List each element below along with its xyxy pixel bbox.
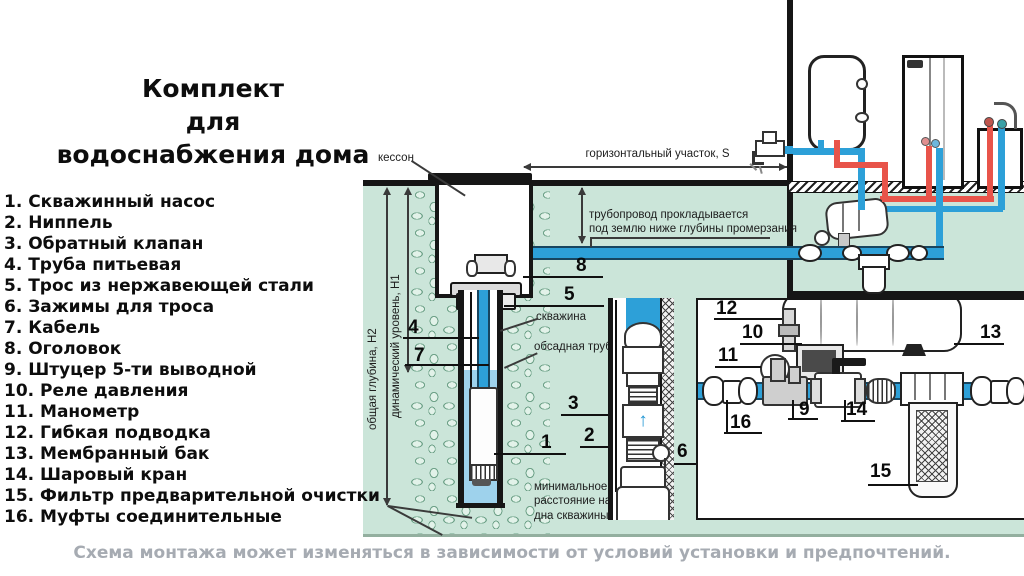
shower-hot-riser xyxy=(926,146,932,202)
well-bottom xyxy=(456,503,505,508)
basement-bottom xyxy=(787,291,1024,298)
footer-note: Схема монтажа может изменяться в зависим… xyxy=(50,543,974,563)
water-supply-diagram: общая глубина, Н2 динамический уровень, … xyxy=(0,0,1024,576)
page-title: Комплект для водоснабжения дома xyxy=(30,72,396,171)
coupling-right-end xyxy=(1006,377,1024,405)
callout-5: 5 xyxy=(564,285,575,304)
heater-cold-stub xyxy=(818,140,824,150)
filter-head-rib xyxy=(944,374,946,400)
leader-line xyxy=(590,237,592,247)
title-line-2: для xyxy=(30,105,396,138)
list-item: 3. Обратный клапан xyxy=(4,234,376,255)
pressure-relay-core xyxy=(802,350,836,372)
pump-cable xyxy=(470,292,472,388)
cold-pipe-house-drop xyxy=(858,148,865,210)
arrowhead xyxy=(404,187,412,195)
shower-cold-riser xyxy=(936,148,943,210)
shower-valve-hot xyxy=(921,137,930,146)
detail-cable xyxy=(615,300,617,492)
callout-line xyxy=(792,400,794,420)
dimension-line-h2 xyxy=(386,189,388,505)
union-adapter xyxy=(866,378,896,404)
detail-coupling xyxy=(622,346,664,374)
callout-1: 1 xyxy=(541,433,552,452)
callout-line xyxy=(714,318,782,320)
list-item: 9. Штуцер 5-ти выводной xyxy=(4,360,376,381)
list-item: 15. Фильтр предварительной очистки xyxy=(4,486,376,507)
callout-line xyxy=(405,364,489,366)
callout-line xyxy=(715,366,761,368)
list-item: 7. Кабель xyxy=(4,318,376,339)
shower-door-line xyxy=(943,58,945,180)
dimension-line-s xyxy=(524,166,787,168)
arrowhead xyxy=(383,187,391,195)
borehole-label: скважина xyxy=(536,311,586,325)
callout-line xyxy=(740,343,802,345)
callout-16: 16 xyxy=(730,413,751,432)
callout-line xyxy=(841,420,875,422)
heater-knob xyxy=(856,78,868,90)
caisson-box xyxy=(435,181,533,298)
detail-thread xyxy=(628,385,658,404)
flow-arrow-icon: ↑ xyxy=(638,410,648,431)
cold-pipe-house xyxy=(793,148,865,155)
list-item: 12. Гибкая подводка xyxy=(4,423,376,444)
drinking-pipe-in-well xyxy=(477,290,490,390)
list-item: 6. Зажимы для троса xyxy=(4,297,376,318)
list-item: 1. Скважинный насос xyxy=(4,192,376,213)
pipe-fitting xyxy=(910,245,928,261)
outdoor-tap-handle xyxy=(762,131,777,144)
filter-head-rib xyxy=(929,374,931,400)
title-line-1: Комплект xyxy=(30,72,396,105)
wellhead-fitting xyxy=(474,254,508,274)
basement-tank xyxy=(824,197,890,241)
callout-line xyxy=(523,276,603,278)
callout-line xyxy=(844,400,846,422)
valve-stem xyxy=(832,364,840,374)
callout-3: 3 xyxy=(568,394,579,413)
pump-detail-view: ↑ xyxy=(608,298,674,520)
coupling-left-end xyxy=(738,377,758,405)
shower-head-icon xyxy=(907,60,923,68)
ground-bottom-line xyxy=(363,534,1024,537)
wellhead-lug xyxy=(466,260,478,277)
arrowhead xyxy=(578,187,586,195)
arrowhead xyxy=(779,163,787,171)
callout-7: 7 xyxy=(414,346,425,365)
arrowhead xyxy=(578,236,586,244)
components-detail-panel: 12 10 11 13 16 9 14 15 xyxy=(696,298,1024,520)
heater-knob xyxy=(855,112,869,123)
detail-pump-body xyxy=(616,486,670,520)
callout-12: 12 xyxy=(716,299,737,318)
horizontal-section-label: горизонтальный участок, S xyxy=(545,148,770,162)
shower-cabin xyxy=(902,55,964,189)
water-heater xyxy=(808,55,866,151)
sink-hot-riser xyxy=(987,124,993,202)
wellhead-lug xyxy=(504,260,516,277)
submersible-pump xyxy=(469,387,498,476)
hose-nut xyxy=(778,324,800,337)
tank-seam xyxy=(820,298,822,346)
detail-casing-left xyxy=(608,298,613,520)
fitting-riser xyxy=(770,358,786,382)
callout-line xyxy=(788,418,818,420)
callout-15: 15 xyxy=(870,462,891,481)
list-item: 4. Труба питьевая xyxy=(4,255,376,276)
casing-pipe-label: обсадная труба xyxy=(534,341,618,355)
callout-4: 4 xyxy=(408,318,419,337)
callout-11: 11 xyxy=(718,346,738,365)
callout-9: 9 xyxy=(799,400,810,419)
list-item: 8. Оголовок xyxy=(4,339,376,360)
list-item: 11. Манометр xyxy=(4,402,376,423)
filter-head-rib xyxy=(914,374,916,400)
filter-cartridge xyxy=(916,410,948,482)
heater-hot-drop xyxy=(882,162,888,202)
callout-line xyxy=(494,453,566,455)
callout-line xyxy=(504,305,604,307)
heater-hot-run xyxy=(834,162,888,168)
arrowhead xyxy=(404,365,412,373)
callout-8: 8 xyxy=(576,256,587,275)
callout-2: 2 xyxy=(584,426,595,445)
sink-cold-riser xyxy=(998,124,1005,210)
dynamic-level-label: динамический уровень, Н1 xyxy=(390,274,402,418)
list-item: 14. Шаровый кран xyxy=(4,465,376,486)
callout-6: 6 xyxy=(677,442,688,461)
parts-list: 1. Скважинный насос2. Ниппель3. Обратный… xyxy=(4,192,376,528)
pump-base xyxy=(472,479,491,486)
callout-10: 10 xyxy=(742,323,763,342)
list-item: 16. Муфты соединительные xyxy=(4,507,376,528)
leader-line xyxy=(590,237,770,239)
dimension-line-h1 xyxy=(407,189,409,372)
pipeline-note-line2: под землю ниже глубины промерзания xyxy=(589,223,797,237)
filter-head xyxy=(900,372,964,406)
ground-surface-line xyxy=(363,180,789,186)
pipeline-note-line1: трубопровод прокладывается xyxy=(589,209,748,223)
faucet-handle-cold xyxy=(997,119,1007,129)
check-valve: ↑ xyxy=(622,404,664,438)
list-item: 10. Реле давления xyxy=(4,381,376,402)
arrowhead xyxy=(523,163,531,171)
callout-line xyxy=(954,343,1004,345)
fitting-riser xyxy=(788,366,801,384)
callout-line xyxy=(868,484,918,486)
title-line-3: водоснабжения дома xyxy=(30,138,396,171)
dimension-line-burial-depth xyxy=(581,188,583,243)
valve-flange xyxy=(810,378,822,404)
shower-valve-cold xyxy=(931,139,940,148)
faucet-handle-hot xyxy=(984,117,994,127)
callout-14: 14 xyxy=(846,400,867,419)
callout-13: 13 xyxy=(980,323,1001,342)
basement-filter-bowl xyxy=(862,266,886,294)
list-item: 5. Трос из нержавеющей стали xyxy=(4,276,376,297)
outdoor-tap-spout xyxy=(752,151,764,165)
pipe-fitting xyxy=(798,244,822,262)
callout-line xyxy=(403,337,479,339)
list-item: 2. Ниппель xyxy=(4,213,376,234)
list-item: 13. Мембранный бак xyxy=(4,444,376,465)
tank-seam xyxy=(892,298,894,346)
callout-line xyxy=(724,432,762,434)
tank-seam xyxy=(856,298,858,346)
basement-tank-band xyxy=(842,203,844,232)
basement-gauge xyxy=(814,230,830,246)
callout-line xyxy=(726,400,728,434)
